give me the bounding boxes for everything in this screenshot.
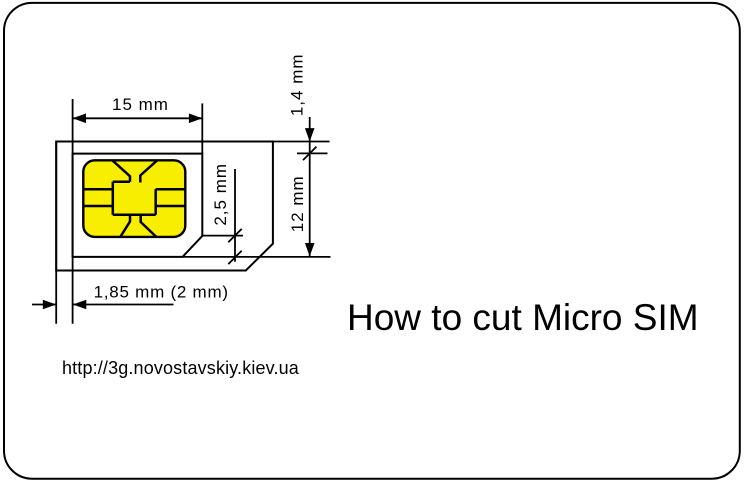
svg-text:http://3g.novostavskiy.kiev.ua: http://3g.novostavskiy.kiev.ua bbox=[62, 358, 300, 378]
svg-text:12 mm: 12 mm bbox=[288, 175, 307, 232]
svg-text:2,5 mm: 2,5 mm bbox=[211, 163, 230, 226]
svg-text:1,4 mm: 1,4 mm bbox=[288, 53, 307, 116]
svg-text:How to cut Micro SIM: How to cut Micro SIM bbox=[347, 297, 699, 338]
svg-text:1,85 mm (2 mm): 1,85 mm (2 mm) bbox=[94, 283, 229, 302]
svg-text:15 mm: 15 mm bbox=[112, 95, 169, 114]
